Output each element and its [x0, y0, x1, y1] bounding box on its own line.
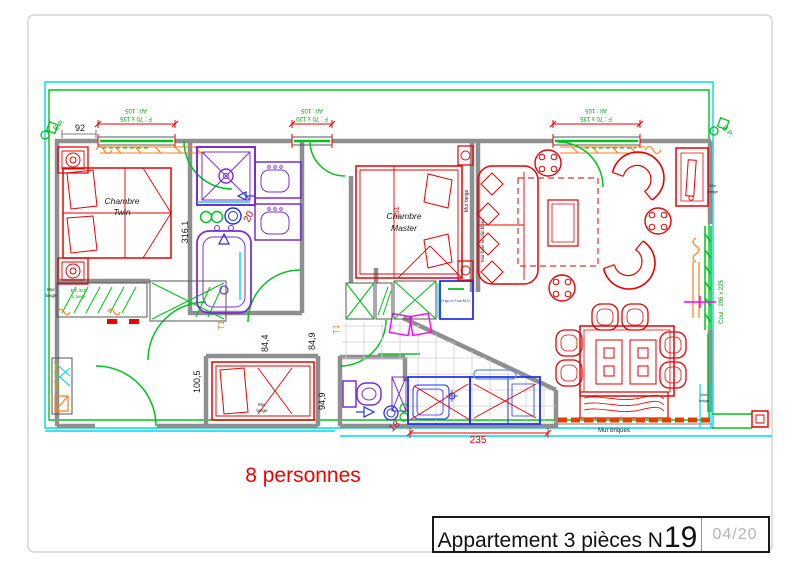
title-main: Appartement 3 pièces N19: [434, 518, 701, 551]
sink-2: [255, 204, 301, 240]
window-left: F : 70 x 135 All : 105: [95, 107, 178, 148]
bifold-door: [389, 314, 411, 336]
ep-left-label: E.P.: [52, 119, 66, 133]
dining-chair: [556, 330, 582, 356]
dining-wall-label-line1: Mur: [701, 392, 709, 397]
left-wall-label-line1: Mur: [47, 287, 55, 292]
alcove-wall-label-line2: beige: [256, 408, 268, 413]
bathroom: 20 316,1: [180, 147, 301, 313]
dimension-18-text: 18: [387, 418, 403, 434]
twin-room-label-line1: Chambre: [105, 196, 140, 206]
toilet-cistern: [343, 381, 356, 407]
floor-plan-drawing: F : 70 x 135 All : 105 F : 70 x 120 All …: [0, 0, 800, 565]
fridge-oven-label: Frigo et Four M.O.: [441, 299, 470, 303]
t1-label-1: T1: [217, 320, 226, 330]
rug: [518, 178, 598, 266]
master-room-label-line1: Chambre: [387, 211, 422, 221]
tv-icon: [686, 160, 696, 196]
twin-room-label-line2: Twin: [113, 207, 131, 217]
window-right-size-label: F : 70 x 135: [579, 115, 611, 121]
dining-chair: [660, 332, 686, 358]
closet-label-line1: E.C./D.F.: [71, 288, 88, 293]
coffee-table: [548, 200, 578, 246]
dining-area: [556, 304, 686, 418]
date-cell: 04/20: [701, 518, 768, 551]
dining-wall-label-line2: beige: [699, 398, 710, 403]
dimension-94-9-text: 94,9: [317, 392, 327, 410]
window-left-size-label: F : 70 x 135: [119, 115, 151, 121]
tv-wall-label-line1: Mur: [710, 183, 718, 188]
brick-wall-label: Mur briques: [598, 428, 630, 434]
master-room-label-line2: Master: [391, 223, 418, 233]
capacity-label: 8 personnes: [228, 464, 378, 488]
faucet-arrow-icon: [219, 234, 229, 244]
window-middle-sill-label: All : 105: [301, 107, 323, 113]
side-table-1: [535, 150, 561, 176]
master-wall-label: Mur beige: [464, 190, 470, 212]
alcove-wall-label-line1: Mur: [258, 402, 266, 407]
window-left-sill-label: All : 105: [125, 107, 147, 113]
dimension-100-5-text: 100,5: [192, 370, 202, 393]
hall-door-arc: [148, 302, 206, 360]
living-door-arc: [558, 142, 603, 187]
dimension-92-text: 92: [75, 123, 85, 133]
twin-room: Chambre Twin: [58, 147, 171, 284]
dining-chair: [660, 362, 686, 388]
t1-label-2: T1: [332, 324, 341, 334]
dining-table: [580, 326, 674, 396]
side-table-2: [645, 208, 671, 234]
bathtub: [197, 231, 251, 313]
window-middle-size-label: F : 70 x 120: [295, 115, 327, 121]
master-door-arc: [310, 141, 345, 176]
floor-plan-page: F : 70 x 135 All : 105 F : 70 x 120 All …: [0, 0, 800, 565]
alcove-bed: Mur beige: [212, 362, 314, 420]
left-wall-label-line2: beige: [45, 293, 57, 298]
toilet-bowl: [357, 383, 381, 405]
washer-symbol: [201, 212, 212, 223]
master-room: Chambre Master 151: [356, 146, 473, 280]
dimension-92: 92: [62, 123, 96, 138]
title-block: Appartement 3 pièces N19 04/20: [432, 516, 770, 553]
coul-dimension-label: Coul : 296 x 225: [719, 279, 725, 323]
apartment-title: Appartement 3 pièces N: [438, 529, 663, 553]
closet-label-line2: L.beige: [72, 294, 86, 299]
dimension-84-9-text: 84,9: [307, 332, 317, 350]
master-wardrobes: Frigo et Four M.O.: [346, 281, 473, 319]
armchair-2: [602, 240, 665, 299]
window-middle: F : 70 x 120 All : 105: [289, 107, 335, 148]
armchair-1: [611, 142, 674, 201]
side-table-3: [549, 275, 575, 301]
faucet-arrow-icon: [364, 407, 374, 417]
dimension-151-text: 151: [394, 206, 401, 218]
tv-wall-label-line2: beige: [708, 189, 719, 194]
window-right-sill-label: All : 105: [585, 107, 607, 113]
faucet-arrow-icon: [238, 192, 246, 200]
ep-right-label: E.P.: [721, 125, 734, 139]
dimension-235-text: 235: [470, 435, 487, 446]
apartment-number: 19: [664, 521, 697, 555]
dimension-84-4-text: 84,4: [260, 334, 270, 352]
dimension-316-text: 316,1: [180, 221, 190, 244]
dining-chair: [556, 360, 582, 386]
radiator-right: [693, 238, 699, 318]
entrance-door-arc: [96, 366, 156, 426]
sink-1: [255, 162, 301, 198]
